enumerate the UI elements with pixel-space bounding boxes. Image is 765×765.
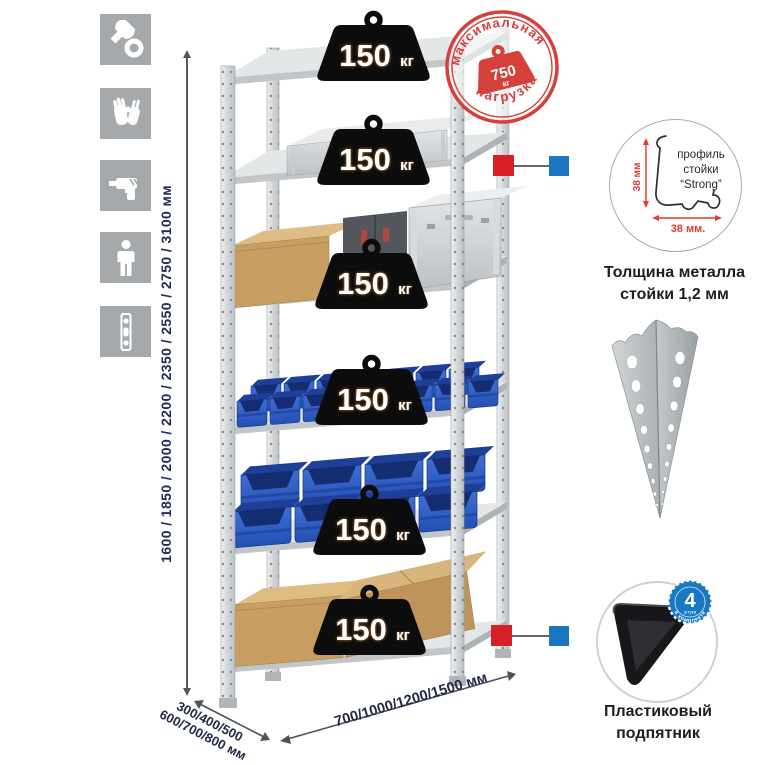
svg-text:кг: кг (400, 53, 414, 70)
connector-blue-marker-bottom (549, 626, 569, 646)
post-strip-icon (100, 306, 151, 357)
load-badge-5: 150 кг (304, 484, 435, 562)
load-badge-1: 150 кг (308, 10, 439, 88)
max-load-stamp: максимальная нагрузка 750 кг (440, 5, 564, 129)
included-count-badge: 4 штуки в комплекте (666, 578, 714, 626)
svg-text:кг: кг (398, 281, 412, 298)
svg-text:“Strong”: “Strong” (680, 179, 722, 191)
height-dimension-line (186, 57, 188, 689)
svg-text:150: 150 (335, 512, 387, 547)
svg-text:150: 150 (339, 142, 391, 177)
height-dimension-label: 1600 / 1850 / 2000 / 2200 / 2350 / 2550 … (155, 60, 177, 688)
load-badge-4: 150 кг (306, 354, 437, 432)
load-badge-2: 150 кг (308, 114, 439, 192)
svg-text:кг: кг (396, 527, 410, 544)
person-icon (100, 232, 151, 283)
svg-text:150: 150 (337, 266, 389, 301)
svg-text:кг: кг (398, 397, 412, 414)
svg-text:профиль: профиль (677, 149, 725, 161)
svg-text:кг: кг (396, 627, 410, 644)
drill-icon (100, 160, 151, 211)
connector-red-marker-top (493, 155, 514, 176)
connector-blue-marker-top (549, 156, 569, 176)
wrench-icon (100, 14, 151, 65)
infographic-canvas: 1600 / 1850 / 2000 / 2200 / 2350 / 2550 … (0, 0, 765, 765)
corner-post-illustration (600, 310, 718, 525)
load-badge-3: 150 кг (306, 238, 437, 316)
profile-callout-circle: 38 мм 38 мм. профиль стойки “Strong” (609, 119, 742, 252)
connector-red-marker-bottom (491, 625, 512, 646)
foot-caption: Пластиковый подпятник (576, 701, 740, 744)
svg-text:150: 150 (339, 38, 391, 73)
svg-text:38 мм: 38 мм (632, 163, 643, 192)
profile-caption: Толщина металла стойки 1,2 мм (577, 262, 765, 305)
load-badge-6: 150 кг (304, 584, 435, 662)
svg-text:150: 150 (337, 382, 389, 417)
svg-text:штуки: штуки (684, 610, 697, 615)
gloves-icon (100, 88, 151, 139)
svg-text:стойки: стойки (683, 164, 718, 176)
svg-text:38 мм.: 38 мм. (671, 223, 706, 235)
svg-text:150: 150 (335, 612, 387, 647)
svg-text:кг: кг (400, 157, 414, 174)
